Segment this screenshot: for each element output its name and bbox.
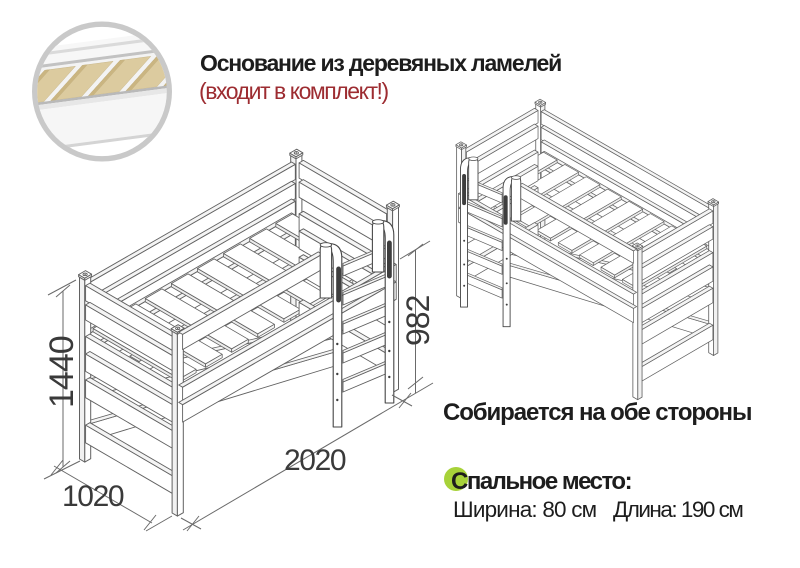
svg-text:1440: 1440 bbox=[43, 336, 81, 408]
svg-text:982: 982 bbox=[400, 295, 436, 346]
svg-text:1020: 1020 bbox=[62, 480, 124, 513]
svg-text:2020: 2020 bbox=[284, 444, 346, 477]
